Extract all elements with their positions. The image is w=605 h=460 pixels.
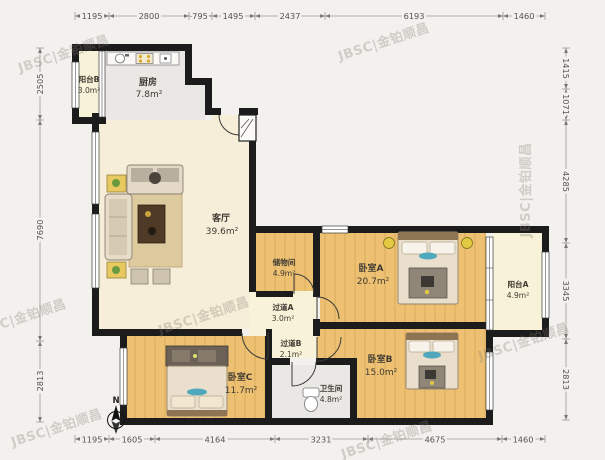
room-area-bedroom-a: 20.7m² — [357, 277, 390, 287]
room-area-bedroom-c: 11.7m² — [225, 386, 258, 396]
side-table-plant-top — [107, 175, 126, 192]
balcony-a-window — [542, 252, 549, 318]
balcony-b-floor — [79, 51, 99, 117]
nightstand-lamp — [462, 238, 473, 249]
bedroom-a-top-window — [322, 226, 348, 233]
dim-label: 4285 — [561, 171, 571, 192]
room-label-bedroom-c: 卧室C — [228, 371, 253, 383]
balcony-a-slider — [486, 237, 493, 330]
floor-plan-image: 阳台B 3.0m² 厨房 7.8m² 客厅 39.6m² 储物间 4.9m² 过… — [0, 0, 605, 460]
sofa — [105, 194, 132, 260]
dim-label: 1415 — [561, 58, 571, 79]
dim-right: 1415 1071 4285 3345 2813 — [561, 48, 571, 420]
plant-icon — [112, 179, 120, 187]
wardrobe-c — [166, 346, 228, 366]
living-room-window-lower — [92, 214, 99, 288]
flue-shaft — [239, 115, 256, 141]
watermark: JBSC|金铂顺昌 — [335, 20, 431, 65]
room-area-storage: 4.9m² — [273, 269, 296, 278]
dim-left: 2505 7690 2813 — [35, 48, 45, 422]
room-area-kitchen: 7.8m² — [136, 90, 163, 100]
dresser-a — [409, 268, 447, 298]
dim-label: 2813 — [561, 369, 571, 390]
dim-label: 1460 — [514, 11, 535, 21]
compass-needle-icon — [112, 405, 121, 421]
dim-label: 4675 — [425, 435, 446, 445]
dim-label: 795 — [192, 11, 208, 21]
room-area-living: 39.6m² — [206, 227, 239, 237]
bedroom-b-furniture — [406, 333, 458, 389]
loveseat — [127, 165, 183, 194]
dim-label: 2437 — [280, 11, 301, 21]
dim-label: 2813 — [35, 371, 45, 392]
room-area-balcony-a: 4.9m² — [507, 291, 530, 300]
bedroom-c-furniture — [166, 346, 228, 416]
room-label-storage: 储物间 — [273, 257, 296, 267]
balcony-kitchen-divider — [99, 51, 105, 117]
room-label-bedroom-a: 卧室A — [359, 262, 384, 274]
living-room-window-upper — [92, 132, 99, 204]
room-label-hallway-b: 过道B — [281, 338, 302, 348]
room-label-hallway-a: 过道A — [272, 302, 293, 312]
bathroom-furniture — [303, 388, 319, 412]
dim-label: 2505 — [35, 74, 45, 95]
kitchen-nook-floor — [185, 85, 205, 120]
bedroom-c-window — [120, 348, 127, 405]
dim-label: 1071 — [561, 94, 571, 115]
bed-c — [167, 366, 227, 416]
room-label-kitchen: 厨房 — [139, 76, 157, 88]
room-label-bedroom-b: 卧室B — [368, 353, 393, 365]
balcony-b-window — [72, 62, 79, 108]
dim-label: 1195 — [82, 435, 103, 445]
room-label-balcony-b: 阳台B — [79, 74, 100, 84]
room-area-balcony-b: 3.0m² — [78, 86, 101, 95]
dim-label: 1460 — [513, 435, 534, 445]
stool — [131, 269, 148, 284]
dim-label: 1605 — [122, 435, 143, 445]
dim-top: 1195 2800 795 1495 2437 6193 1460 — [75, 11, 545, 21]
room-area-bedroom-b: 15.0m² — [365, 368, 398, 378]
room-label-balcony-a: 阳台A — [507, 279, 528, 289]
dim-label: 3345 — [561, 281, 571, 302]
room-label-bathroom: 卫生间 — [320, 383, 343, 393]
dim-label: 1495 — [223, 11, 244, 21]
compass-n-label: N — [112, 396, 119, 406]
living-room-furniture — [105, 165, 183, 284]
dim-label: 4164 — [205, 435, 226, 445]
room-area-hallway-a: 3.0m² — [272, 314, 295, 323]
side-table-plant-bottom — [107, 262, 126, 278]
sink-icon — [116, 54, 125, 63]
dim-bottom: 1195 1605 4164 3231 4675 1460 — [75, 435, 545, 445]
kitchen-counter — [107, 52, 179, 65]
dim-label: 2800 — [139, 11, 160, 21]
toilet-icon — [303, 388, 319, 412]
dim-label: 6193 — [404, 11, 425, 21]
dresser-b — [419, 366, 445, 388]
watermark: JBSC|金铂顺昌 — [518, 143, 534, 239]
watermark: JBSC|金铂顺昌 — [0, 296, 68, 341]
plant-icon — [112, 266, 120, 274]
room-area-hallway-b: 2.1m² — [280, 350, 303, 359]
room-label-living: 客厅 — [211, 212, 230, 224]
stove-icon — [136, 54, 153, 64]
stool — [153, 269, 170, 284]
coffee-table — [138, 205, 165, 243]
dim-label: 7690 — [35, 220, 45, 241]
room-area-bathroom: 4.8m² — [320, 395, 343, 404]
dim-label: 1195 — [82, 11, 103, 21]
nightstand-lamp — [384, 238, 395, 249]
dim-label: 3231 — [311, 435, 332, 445]
